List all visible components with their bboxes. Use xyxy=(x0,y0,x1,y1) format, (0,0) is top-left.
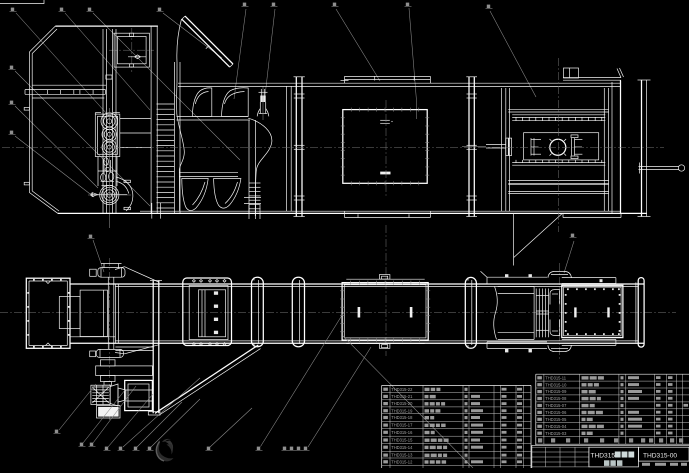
svg-text:THD315-05: THD315-05 xyxy=(545,417,567,422)
svg-text:THD315-21: THD315-21 xyxy=(391,394,413,399)
svg-text:THD315-03: THD315-03 xyxy=(545,431,567,436)
svg-text:THD315-20: THD315-20 xyxy=(391,401,413,406)
svg-text:THD315-04: THD315-04 xyxy=(545,424,567,429)
svg-text:THD315-18: THD315-18 xyxy=(391,415,413,420)
svg-text:THD315-07: THD315-07 xyxy=(545,403,567,408)
svg-text:THD315-08: THD315-08 xyxy=(545,396,567,401)
svg-text:THD315: THD315 xyxy=(591,453,616,460)
svg-text:THD315-12: THD315-12 xyxy=(391,459,413,464)
svg-text:THD315-17: THD315-17 xyxy=(391,423,413,428)
svg-text:THD315-09: THD315-09 xyxy=(545,389,567,394)
svg-text:THD315-14: THD315-14 xyxy=(391,445,413,450)
svg-text:THD315-00: THD315-00 xyxy=(643,452,677,459)
svg-text:THD315-15: THD315-15 xyxy=(391,438,413,443)
svg-text:THD315-16: THD315-16 xyxy=(391,430,413,435)
svg-text:THD315-22: THD315-22 xyxy=(391,387,413,392)
svg-text:THD315-13: THD315-13 xyxy=(391,453,413,458)
svg-text:THD315-06: THD315-06 xyxy=(545,410,567,415)
svg-text:THD315-10: THD315-10 xyxy=(545,382,567,387)
svg-text:THD315-11: THD315-11 xyxy=(545,375,567,380)
svg-text:THD315-19: THD315-19 xyxy=(391,408,413,413)
